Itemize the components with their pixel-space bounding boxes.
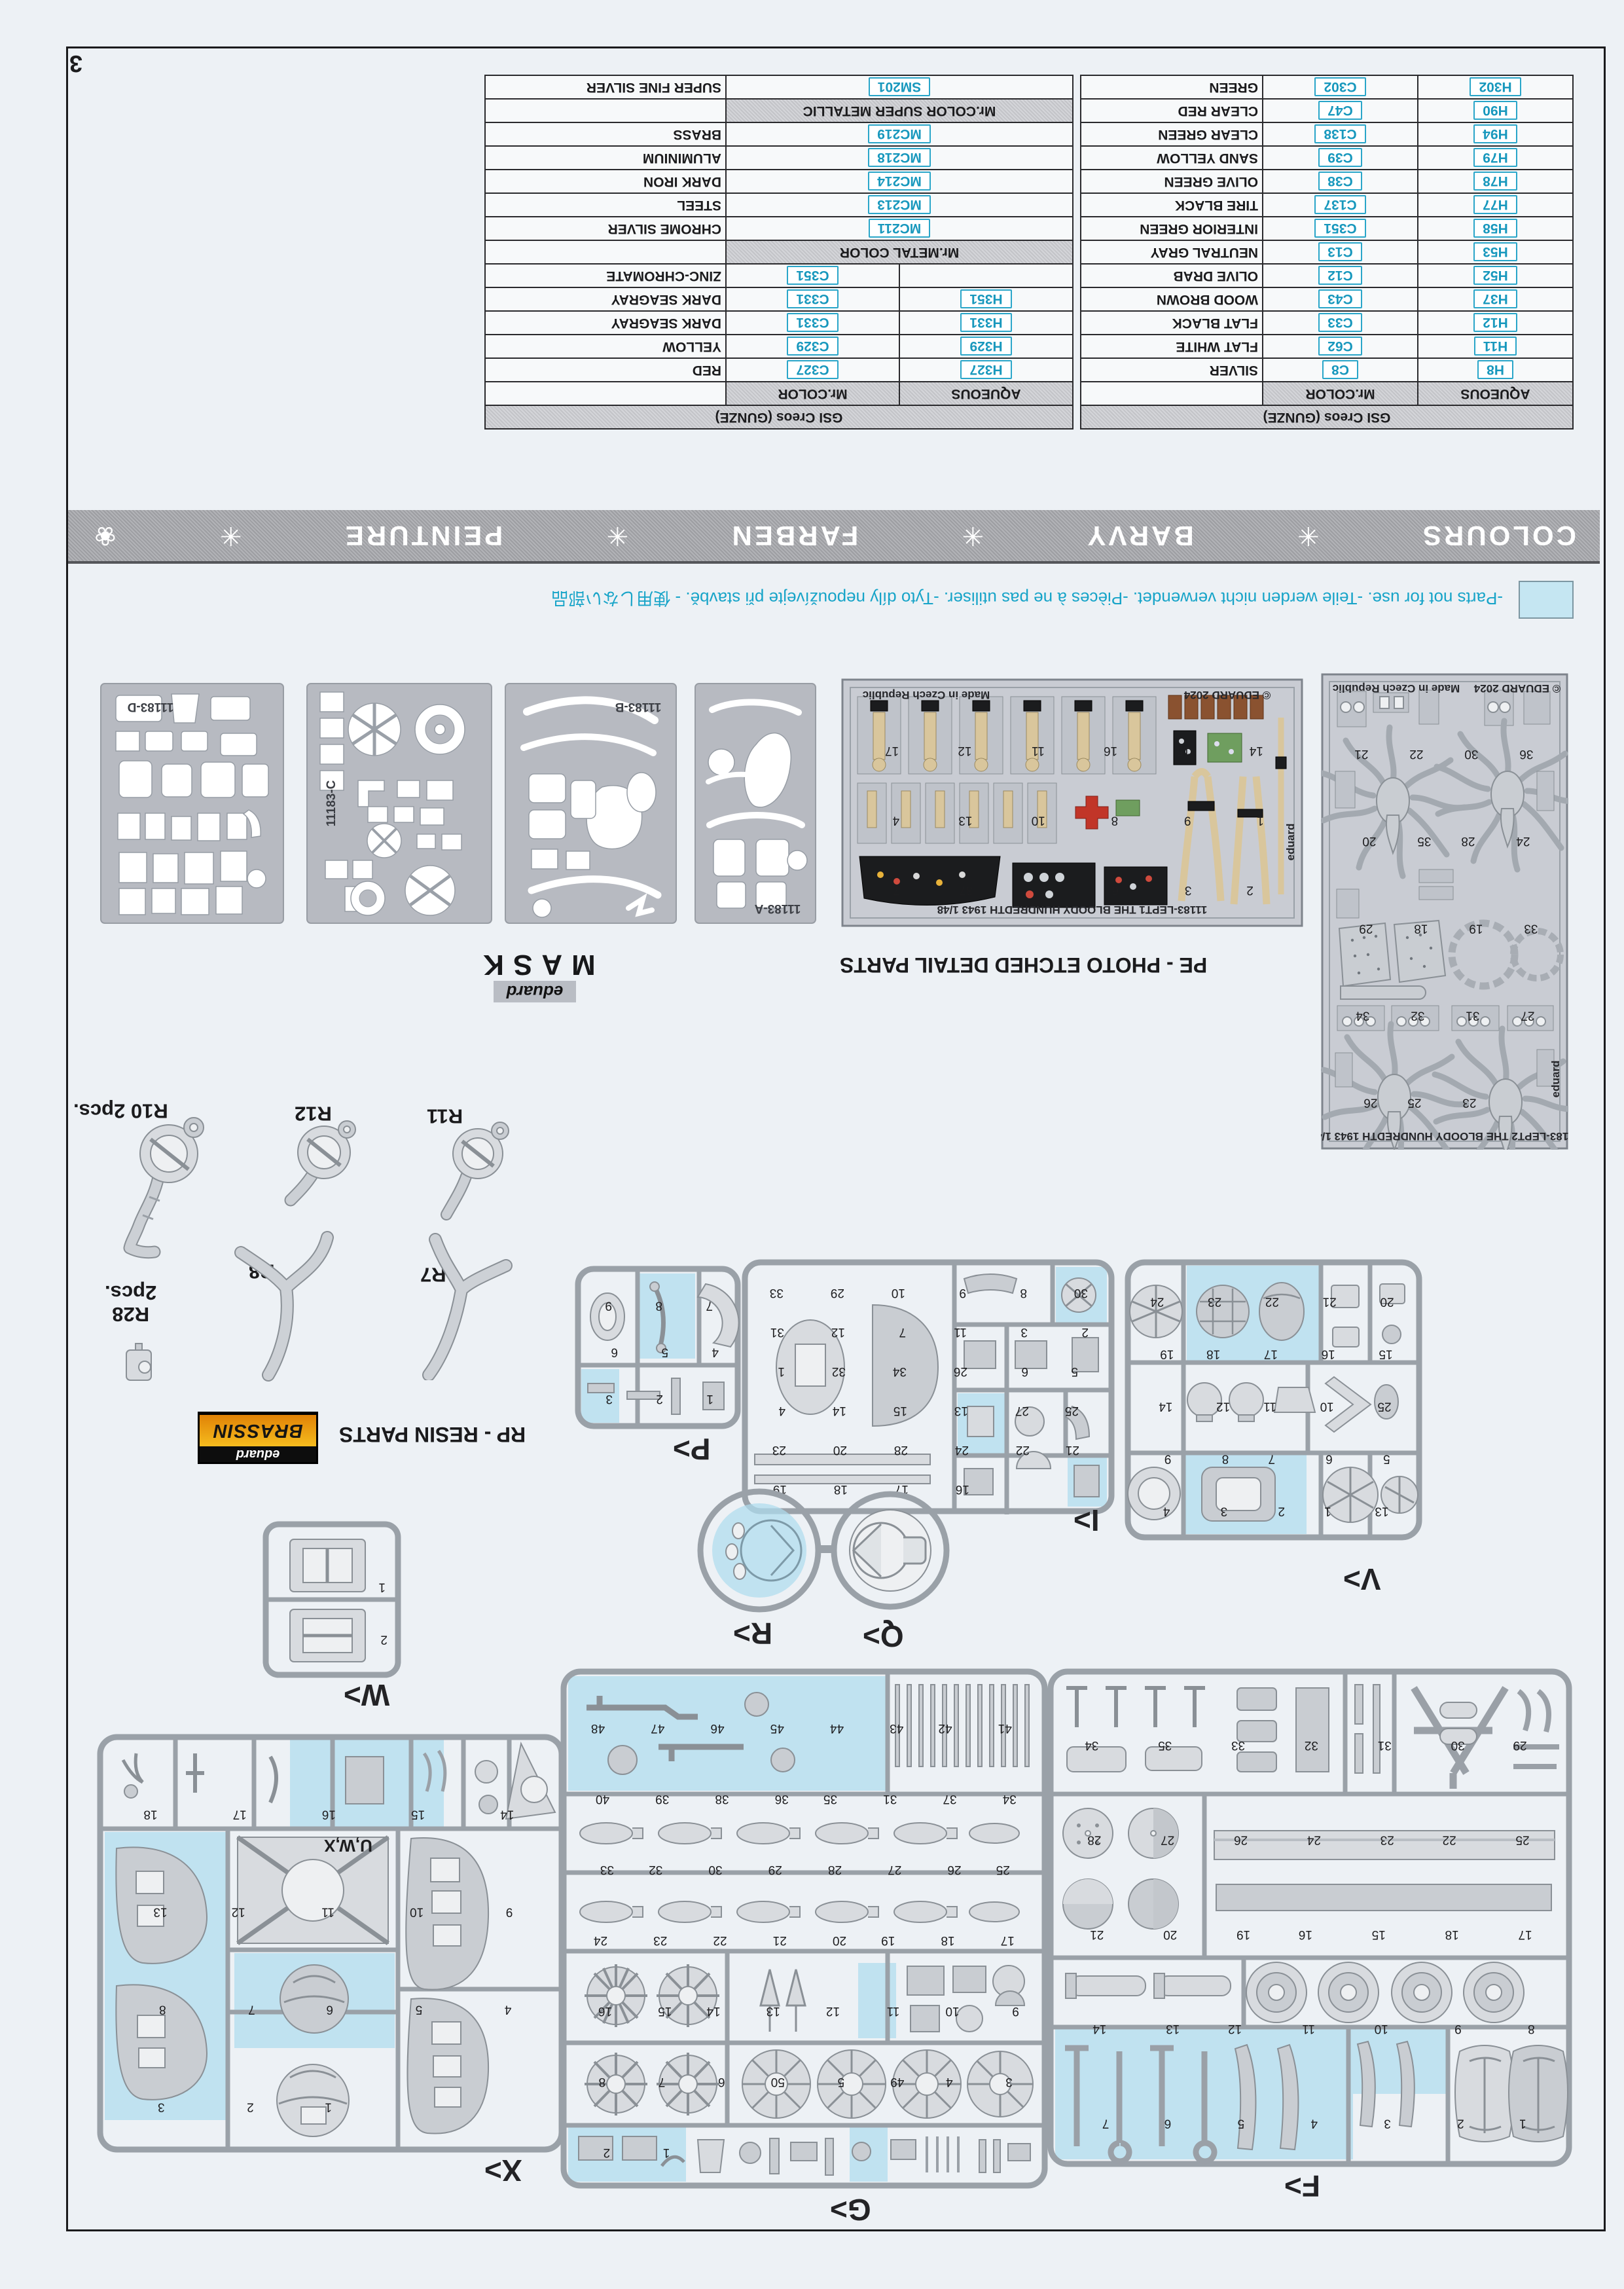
part-number: 22: [713, 1933, 727, 1947]
table-row: MC218ALUMINIUM: [485, 146, 1073, 170]
sprue-i-label: I>: [1074, 1503, 1100, 1538]
table-row: H11C62FLAT WHITE: [1081, 335, 1573, 358]
mask-sheet-11183-C: 11183-C: [306, 682, 493, 925]
sprue-q-label: Q>: [863, 1619, 904, 1654]
part-number: 5: [838, 2075, 845, 2089]
part-number: 31: [1378, 1738, 1392, 1752]
paint-code-chip: C43: [1318, 290, 1362, 309]
part-number: 10: [945, 2004, 959, 2018]
part-number: 14: [1159, 1400, 1173, 1414]
paint-name: RED: [485, 358, 726, 382]
part-number: 28: [1461, 834, 1475, 848]
resin-part-r12: [275, 1116, 373, 1208]
paint-code-chip: H11: [1474, 337, 1517, 356]
part-number: 25: [996, 1863, 1010, 1877]
paint-name: GREEN: [1081, 75, 1263, 99]
column-header: AQUEOUS: [899, 382, 1073, 405]
mask-sheet-id: 11183-D: [128, 700, 174, 714]
pe-brand: eduard: [1284, 824, 1297, 861]
pipe-parts: [1066, 1973, 1231, 1998]
part-number: 15: [893, 1404, 907, 1418]
part-number: 11: [1302, 2022, 1315, 2036]
table-row: H327C327RED: [485, 358, 1073, 382]
sprue-w-label: W>: [344, 1677, 389, 1713]
table-row: H52C12OLIVE DRAB: [1081, 264, 1573, 287]
part-number: 22: [1265, 1295, 1279, 1309]
paint-code-chip: MC211: [869, 219, 931, 238]
brassin-logo-name: BRASSIN: [200, 1415, 316, 1446]
part-number: 10: [892, 1286, 905, 1300]
paint-code-chip: C47: [1318, 101, 1362, 120]
part-number: 12: [232, 1905, 245, 1918]
part-number: 14: [706, 2004, 721, 2018]
table-row: MC219BRASS: [485, 122, 1073, 146]
sprue-x: U,W,X 181716151413121110987654321: [97, 1734, 565, 2153]
part-number: 9: [605, 1298, 612, 1312]
part-number: 13: [954, 1404, 968, 1418]
part-number: 4: [778, 1404, 785, 1418]
column-header: AQUEOUS: [1418, 382, 1573, 405]
not-for-use-swatch: [1519, 581, 1574, 619]
paint-name: YELLOW: [485, 335, 726, 358]
sprue-x-code: U,W,X: [324, 1836, 372, 1856]
star-separator-icon: ✳: [960, 521, 984, 551]
table-row: H79C39SAND YELLOW: [1081, 146, 1573, 170]
part-number: 12: [1228, 2022, 1242, 2036]
part-number: 45: [770, 1721, 784, 1735]
part-number: 28: [894, 1443, 908, 1457]
resin-part-r8: [223, 1228, 344, 1382]
paint-code-chip: C302: [1314, 78, 1365, 97]
part-number: 33: [1524, 921, 1538, 935]
part-number: 12: [958, 744, 971, 758]
sprue-g-label: G>: [830, 2192, 871, 2227]
part-number: 6: [1164, 2117, 1172, 2131]
banner-word: PEINTURE: [343, 520, 503, 551]
paint-code-chip: H94: [1473, 125, 1517, 144]
paint-name: OLIVE GREEN: [1081, 170, 1263, 193]
part-number: 19: [1236, 1928, 1250, 1941]
part-number: 31: [770, 1325, 784, 1339]
part-number: 49: [890, 2075, 904, 2089]
part-number: 1: [706, 1392, 713, 1406]
paint-code-chip: C351: [1314, 219, 1365, 238]
part-number: 32: [1305, 1738, 1318, 1752]
pe-copyright: © EDUARD 2024: [1183, 689, 1271, 701]
part-number: 36: [775, 1792, 789, 1806]
part-number: 33: [1231, 1738, 1245, 1752]
paint-code-chip: H78: [1473, 172, 1517, 191]
part-number: 11: [321, 1905, 334, 1918]
flower-ornament-icon: ❀: [92, 521, 117, 551]
part-number: 1: [778, 1364, 785, 1378]
part-number: 20: [833, 1443, 847, 1457]
column-header: Mr.COLOR: [1263, 382, 1418, 405]
paint-name: INTERIOR GREEN: [1081, 217, 1263, 240]
paint-code-chip: MC219: [868, 125, 931, 144]
part-number: 14: [1249, 744, 1263, 758]
paint-code-chip: H8: [1477, 361, 1513, 380]
part-number: 3: [1221, 1505, 1228, 1518]
table-brand: GSI Creos (GUNZE): [1081, 405, 1573, 429]
part-number: 22: [1409, 747, 1423, 761]
part-number: 1: [663, 2146, 670, 2159]
part-number: 18: [1414, 921, 1428, 935]
paint-code-chip: H327: [960, 361, 1011, 380]
part-number: 37: [943, 1792, 956, 1806]
resin-caption: RP - RESIN PARTS: [339, 1422, 526, 1446]
paint-code-chip: H37: [1473, 290, 1517, 309]
colour-table: GSI Creos (GUNZE)AQUEOUSMr.COLORH327C327…: [484, 75, 1074, 430]
engine-and-prop-parts: [585, 1964, 1024, 2032]
paint-code-chip: H329: [960, 337, 1011, 356]
part-number: 14: [832, 1404, 846, 1418]
mask-logo-text: MASK: [437, 948, 633, 981]
colour-table: GSI Creos (GUNZE)AQUEOUSMr.COLORH8C8SILV…: [1080, 75, 1574, 430]
part-number: 21: [1066, 1443, 1079, 1457]
part-number: 26: [1363, 1096, 1377, 1110]
paint-name: SAND YELLOW: [1081, 146, 1263, 170]
paint-name: NEUTRAL GRAY: [1081, 240, 1263, 264]
table-row: H90C47CLEAR RED: [1081, 99, 1573, 122]
disc-parts: [1063, 1808, 1178, 1929]
part-number: 13: [1375, 1505, 1388, 1518]
part-number: 6: [1021, 1364, 1028, 1378]
banner-word: FARBEN: [730, 520, 859, 551]
sprue-v-label: V>: [1343, 1562, 1381, 1597]
part-number: 2: [1278, 1505, 1285, 1518]
part-number: 35: [1417, 834, 1431, 848]
paint-code-chip: H90: [1473, 101, 1517, 120]
part-number: 11: [954, 1325, 967, 1339]
part-number: 12: [1216, 1400, 1230, 1414]
sprue-p-label: P>: [673, 1431, 711, 1467]
part-number: 24: [1150, 1295, 1164, 1309]
part-number: 41: [998, 1721, 1012, 1735]
part-number: 2: [1081, 1325, 1089, 1339]
paint-code-chip: MC213: [868, 196, 931, 215]
paint-name: BRASS: [485, 122, 726, 146]
part-number: 17: [1518, 1928, 1532, 1941]
table-row: H94C138CLEAR GREEN: [1081, 122, 1573, 146]
part-number: 24: [954, 1443, 969, 1457]
table-row: MC214DARK IRON: [485, 170, 1073, 193]
part-number: 15: [1176, 744, 1190, 758]
paint-name: CLEAR RED: [1081, 99, 1263, 122]
part-number: 22: [1016, 1443, 1030, 1457]
pe-fret-lept1: 171211161514413108917375632 11183-LEPT1 …: [841, 678, 1303, 927]
part-number: 26: [947, 1863, 961, 1877]
paint-code-chip: C331: [787, 290, 838, 309]
part-number: 28: [1087, 1833, 1101, 1846]
part-number: 2: [604, 2146, 611, 2159]
table-row: H58C351INTERIOR GREEN: [1081, 217, 1573, 240]
paint-code-chip: C327: [787, 361, 838, 380]
part-number: 7: [1268, 1452, 1275, 1466]
part-number: 32: [1411, 1009, 1424, 1023]
part-number: 3: [605, 1392, 613, 1406]
part-number: 24: [1516, 834, 1530, 848]
small-top-parts: [1066, 1685, 1380, 1773]
part-number: 33: [770, 1286, 784, 1300]
not-for-use-text: -Parts not for use. -Teile werden nicht …: [551, 588, 1503, 612]
mask-sheet-id: 11183-B: [615, 700, 662, 714]
colour-table-metal: GSI Creos (GUNZE)AQUEOUSMr.COLORH327C327…: [486, 90, 1074, 430]
part-number: 10: [1032, 813, 1045, 827]
part-number: 34: [1002, 1792, 1017, 1806]
part-number: 24: [1307, 1833, 1321, 1846]
paint-name: DARK IRON: [485, 170, 726, 193]
table-row: H12C33FLAT BLACK: [1081, 311, 1573, 335]
paint-name: CHROME SILVER: [485, 217, 726, 240]
part-number: 6: [1112, 883, 1119, 897]
part-number: 6: [1326, 1452, 1333, 1466]
sprue-g: 4847464544434241403938363531373433323029…: [560, 1668, 1048, 2189]
part-number: 5: [416, 2002, 423, 2016]
part-number: 36: [1519, 747, 1533, 761]
eduard-mask-logo: eduard MASK: [437, 948, 633, 1002]
banner-word: COLOURS: [1420, 520, 1576, 551]
part-number: 17: [885, 744, 899, 758]
part-number: 29: [1359, 921, 1373, 935]
part-number: 25: [1515, 1833, 1529, 1846]
paint-code-chip: C62: [1318, 337, 1362, 356]
part-number: 17: [233, 1807, 247, 1821]
paint-code-chip: C351: [787, 266, 838, 285]
brassin-logo-eduard: eduard: [200, 1446, 316, 1462]
part-number: 23: [1208, 1295, 1221, 1309]
part-number: 37: [959, 883, 973, 897]
part-number: 20: [1380, 1295, 1394, 1309]
part-number: 21: [773, 1933, 787, 1947]
part-number: 35: [1158, 1738, 1172, 1752]
part-number: 29: [1513, 1738, 1526, 1752]
part-number: 7: [893, 883, 901, 897]
paint-name: ALUMINIUM: [485, 146, 726, 170]
paint-name: OLIVE DRAB: [1081, 264, 1263, 287]
part-numbers: 12: [378, 1581, 388, 1647]
resin-part-r7: [389, 1230, 520, 1380]
part-number: 27: [888, 1863, 901, 1877]
scanned-instruction-page: { "page": {"number": "3"}, "notice": {"t…: [0, 0, 1624, 2289]
part-number: 8: [159, 2002, 166, 2016]
resin-part-r28: [121, 1341, 157, 1385]
part-number: 10: [410, 1905, 424, 1918]
part-number: 13: [958, 813, 972, 827]
sprue-x-label: X>: [484, 2153, 522, 2188]
part-number: 3: [1185, 883, 1192, 897]
sprue-p: 987654321: [575, 1266, 741, 1429]
paint-code-chip: C38: [1318, 172, 1362, 191]
part-number: 48: [591, 1721, 605, 1735]
paint-code-chip: H351: [960, 290, 1011, 309]
mask-sheet-id: 11183-A: [754, 902, 801, 915]
bomb-parts-row1: [580, 1823, 1019, 1844]
part-number: 10: [1375, 2022, 1388, 2036]
part-number: 15: [1379, 1347, 1392, 1361]
part-number: 23: [653, 1933, 667, 1947]
table-brand: GSI Creos (GUNZE): [485, 405, 1073, 429]
part-number: 17: [1001, 1933, 1015, 1947]
mask-sheet-id: 11183-C: [325, 780, 338, 826]
paint-code-chip: H331: [960, 314, 1011, 333]
table-row: C351ZINC-CHROMATE: [485, 264, 1073, 287]
part-number: 15: [411, 1807, 425, 1821]
part-number: 43: [890, 1721, 903, 1735]
part-number: 9: [1184, 813, 1191, 827]
table-row: H78C38OLIVE GREEN: [1081, 170, 1573, 193]
sprue-f-label: F>: [1284, 2169, 1320, 2204]
star-separator-icon: ✳: [604, 521, 629, 551]
part-number: 15: [658, 2004, 672, 2018]
star-separator-icon: ✳: [1295, 521, 1320, 551]
part-number: 4: [712, 1346, 719, 1359]
paint-code-chip: C329: [787, 337, 838, 356]
part-number: 8: [599, 2075, 606, 2089]
resin-label-r28: R28 2pcs.: [105, 1282, 156, 1325]
part-number: 18: [941, 1933, 954, 1947]
part-number: 20: [833, 1933, 846, 1947]
part-number: 27: [1521, 1009, 1534, 1023]
part-number: 20: [1163, 1928, 1177, 1941]
part-number: 5: [1383, 1452, 1390, 1466]
mask-sheet-11183-D: 11183-D: [99, 682, 285, 925]
part-number: 7: [706, 1298, 713, 1312]
part-number: 15: [1372, 1928, 1386, 1941]
paint-code-chip: C33: [1318, 314, 1362, 333]
paint-code-chip: H79: [1473, 149, 1517, 168]
pe-copyright: © EDUARD 2024: [1473, 682, 1561, 695]
part-number: 8: [1528, 2022, 1535, 2036]
paint-name: DARK SEAGRAY: [485, 287, 726, 311]
part-number: 30: [708, 1863, 722, 1877]
part-number: 3: [1384, 2117, 1391, 2131]
page-number: 3: [69, 50, 82, 77]
paint-code-chip: C13: [1318, 243, 1362, 262]
part-number: 21: [1323, 1295, 1337, 1309]
sprue-r-label: R>: [733, 1616, 772, 1651]
part-number: 42: [938, 1721, 952, 1735]
part-number: 7: [659, 2075, 666, 2089]
part-number: 25: [1065, 1404, 1079, 1418]
part-number: 27: [1161, 1833, 1174, 1846]
part-number: 7: [1102, 2117, 1110, 2131]
part-number: 24: [594, 1933, 608, 1947]
part-number: 32: [832, 1364, 846, 1378]
table-row: H302C302GREEN: [1081, 75, 1573, 99]
part-number: 14: [1092, 2022, 1107, 2036]
part-number: 8: [1222, 1452, 1229, 1466]
star-separator-icon: ✳: [217, 521, 242, 551]
table-row: H329C329YELLOW: [485, 335, 1073, 358]
table-row: H331C331DARK SEAGRAY: [485, 311, 1073, 335]
pe-fret-lept2: 21223036203528242918193334323127262523 1…: [1321, 673, 1568, 1150]
part-number: 7: [248, 2002, 255, 2016]
part-number: 8: [1111, 813, 1119, 827]
part-number: 9: [1012, 2004, 1019, 2018]
part-number: 19: [1160, 1347, 1174, 1361]
part-number: 30: [1464, 747, 1478, 761]
pe-fret-title: 11183-LEPT1 THE BLOODY HUNDREDTH 1943 1/…: [937, 904, 1208, 916]
colours-banner: COLOURS✳BARVY✳FARBEN✳PEINTURE✳❀: [68, 510, 1600, 564]
part-number: 25: [1377, 1400, 1391, 1414]
table-row: H37C43WOOD BROWN: [1081, 287, 1573, 311]
eduard-logo-text: eduard: [494, 981, 577, 1002]
table-row: SM201SUPER FINE SILVER: [485, 75, 1073, 99]
table-row: H351C331DARK SEAGRAY: [485, 287, 1073, 311]
paint-name: WOOD BROWN: [1081, 287, 1263, 311]
paint-code-chip: H12: [1473, 314, 1517, 333]
part-number: 9: [1454, 2022, 1462, 2036]
part-number: 12: [826, 2004, 840, 2018]
part-number: 5: [1071, 1364, 1078, 1378]
pe-brand: eduard: [1549, 1061, 1562, 1098]
part-number: 23: [772, 1443, 786, 1457]
sprue-w: 12: [261, 1521, 405, 1678]
table-section-header: Mr.METAL COLOR: [726, 240, 1073, 264]
part-number: 9: [959, 1286, 966, 1300]
mask-sheet-11183-B: 11183-B: [504, 682, 677, 925]
part-number: 6: [718, 2075, 725, 2089]
mask-sheet-11183-A: 11183-A: [694, 682, 817, 925]
part-number: 18: [1206, 1347, 1220, 1361]
part-number: 9: [1164, 1452, 1172, 1466]
sprue-qr: [694, 1485, 956, 1616]
part-number: 29: [768, 1863, 782, 1877]
part-number: 33: [600, 1863, 614, 1877]
pe-caption: PE - PHOTO ETCHED DETAIL PARTS: [840, 953, 1207, 977]
part-number: 46: [710, 1721, 724, 1735]
part-number: 29: [831, 1286, 844, 1300]
part-number: 4: [1163, 1505, 1170, 1518]
column-header: Mr.COLOR: [726, 382, 899, 405]
part-number: 47: [651, 1721, 664, 1735]
part-number: 11: [887, 2004, 900, 2018]
part-number: 1: [1519, 2117, 1526, 2131]
paint-name: FLAT BLACK: [1081, 311, 1263, 335]
paint-name: DARK SEAGRAY: [485, 311, 726, 335]
part-number: 26: [954, 1364, 967, 1378]
part-number: 13: [1166, 2022, 1180, 2036]
cowling-parts: [1455, 2045, 1568, 2142]
part-number: 5: [1238, 2117, 1245, 2131]
part-number: 10: [1320, 1400, 1334, 1414]
part-number: 16: [598, 2004, 612, 2018]
paint-code-chip: MC218: [868, 149, 931, 168]
part-number: 2: [247, 2100, 254, 2114]
part-number: 18: [1445, 1928, 1459, 1941]
paint-name: STEEL: [485, 193, 726, 217]
not-for-use-notice: -Parts not for use. -Teile werden nicht …: [450, 574, 1574, 626]
part-number: 16: [956, 1482, 969, 1496]
part-number: 26: [1234, 1833, 1248, 1846]
resin-label-r28-qty: 2pcs.: [105, 1282, 156, 1304]
part-number: 34: [1085, 1738, 1099, 1752]
paint-code-chip: C138: [1314, 125, 1365, 144]
part-number: 21: [1354, 747, 1368, 761]
part-number: 17: [1264, 1347, 1278, 1361]
paint-code-chip: H58: [1473, 219, 1517, 238]
part-number: 16: [1104, 744, 1117, 758]
part-number: 34: [892, 1364, 907, 1378]
part-number: 6: [326, 2002, 333, 2016]
part-number: 9: [506, 1905, 513, 1918]
part-number: 31: [1466, 1009, 1479, 1023]
part-number: 22: [1443, 1833, 1456, 1846]
part-number: 20: [1362, 834, 1376, 848]
part-number: 16: [322, 1807, 336, 1821]
paint-code-chip: MC214: [868, 172, 931, 191]
